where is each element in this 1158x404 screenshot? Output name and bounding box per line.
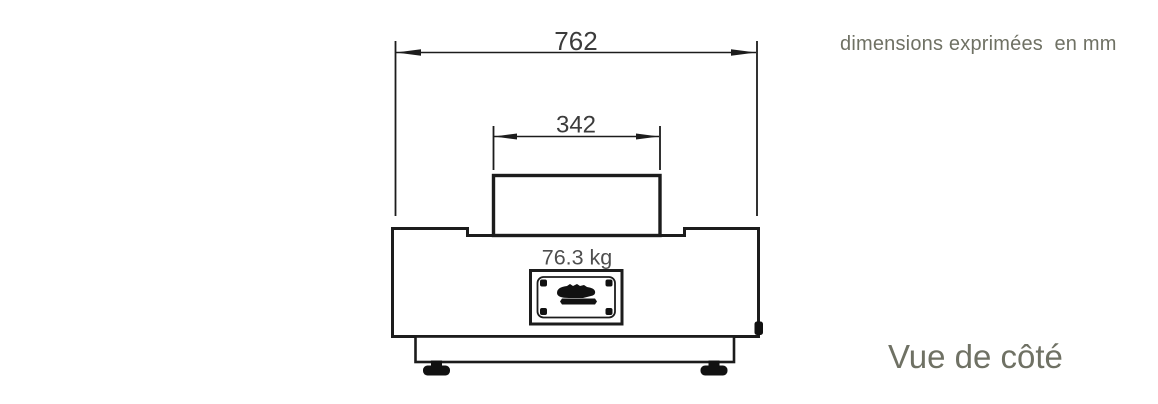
nameplate-corner-screw-icon bbox=[540, 308, 547, 315]
nameplate bbox=[531, 271, 623, 325]
units-note: dimensions exprimées en mm bbox=[840, 33, 1117, 56]
base-plinth-outline bbox=[416, 337, 735, 363]
view-label: Vue de côté bbox=[888, 338, 1063, 376]
top-box-outline bbox=[494, 176, 661, 236]
arrowhead-left-icon bbox=[396, 49, 421, 55]
nameplate-corner-screw-icon bbox=[606, 280, 613, 287]
top-width-dimension: 342 bbox=[494, 112, 661, 171]
arrowhead-right-icon bbox=[731, 49, 756, 55]
side-tab bbox=[755, 322, 764, 336]
foot-pad bbox=[701, 366, 728, 376]
weight-value: 76.3 kg bbox=[542, 246, 613, 270]
nameplate-corner-screw-icon bbox=[540, 280, 547, 287]
arrowhead-left-icon bbox=[494, 134, 517, 140]
arrowhead-right-icon bbox=[636, 134, 659, 140]
foot-pad bbox=[423, 366, 450, 376]
top-width-value: 342 bbox=[556, 112, 596, 139]
technical-drawing-canvas: 762 342 76.3 kg bbox=[0, 0, 1158, 404]
nameplate-logo-bar bbox=[560, 299, 597, 305]
overall-width-value: 762 bbox=[554, 26, 597, 56]
nameplate-corner-screw-icon bbox=[606, 308, 613, 315]
